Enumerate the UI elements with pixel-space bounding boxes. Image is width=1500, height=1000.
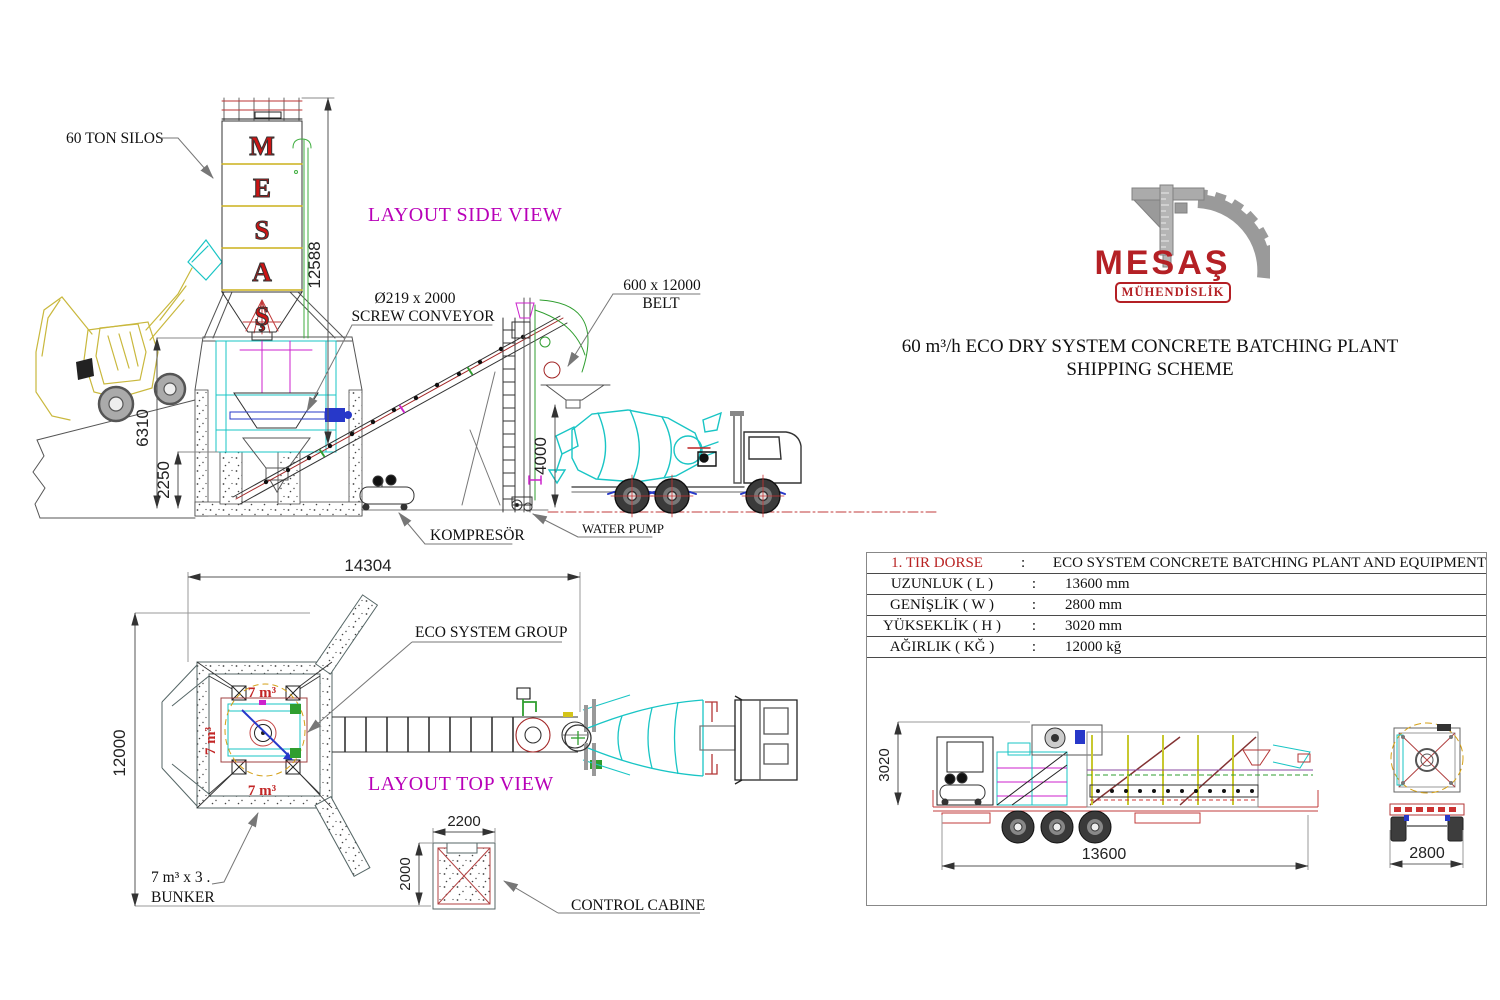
top-view-title: LAYOUT TOP VIEW xyxy=(368,773,554,795)
truck-wheels xyxy=(611,475,784,517)
control-cabin-plan xyxy=(433,843,495,909)
spec-separator: : xyxy=(1007,553,1039,573)
bunker-label-line1: 7 m³ x 3 . xyxy=(151,869,210,886)
compressor-label: KOMPRESÖR xyxy=(430,527,525,544)
logo-subtitle-badge: MÜHENDİSLİK xyxy=(1115,282,1231,303)
side-view-title: LAYOUT SIDE VIEW xyxy=(368,204,562,226)
discharge-tower xyxy=(503,298,610,512)
mixer-truck-side xyxy=(549,410,801,517)
table-row: 1. TIR DORSE : ECO SYSTEM CONCRETE BATCH… xyxy=(867,553,1486,574)
dim-plant-length: 14304 xyxy=(344,556,391,575)
spec-value: ECO SYSTEM CONCRETE BATCHING PLANT AND E… xyxy=(1039,553,1486,573)
silo-letter: S xyxy=(254,215,269,245)
cement-silo: M E S A Ş xyxy=(222,98,311,340)
frame-brackets xyxy=(705,702,717,774)
wheel-loader xyxy=(36,240,222,421)
silo-letter: M xyxy=(249,131,274,161)
control-cabin-label: CONTROL CABINE xyxy=(571,897,705,914)
dim-plant-width: 12000 xyxy=(110,729,129,776)
dim-cabin-width: 2200 xyxy=(447,813,480,830)
cab-plan xyxy=(735,696,797,784)
belt-label-line1: 600 x 12000 xyxy=(623,277,701,294)
spec-separator: : xyxy=(1017,616,1051,636)
dim-cabin-depth: 2000 xyxy=(397,857,414,890)
spec-label: AĞIRLIK ( KĞ ) xyxy=(867,637,1017,657)
company-logo: MESAŞ MÜHENDİSLİK xyxy=(1085,178,1285,313)
dim-structure-height: 6310 xyxy=(133,409,152,447)
bunker-cell-label: 7 m³ xyxy=(248,685,277,701)
dim-silo-height: 12588 xyxy=(305,241,324,288)
bunker-cell-label: 7 m³ xyxy=(203,726,219,755)
mixer-truck-plan xyxy=(565,696,797,784)
spec-separator: : xyxy=(1017,637,1051,657)
bunker-cell-label: 7 m³ xyxy=(248,783,277,799)
table-row: AĞIRLIK ( KĞ ) : 12000 kğ xyxy=(867,637,1486,658)
spec-label: 1. TIR DORSE xyxy=(867,553,1007,573)
spec-separator: : xyxy=(1017,595,1051,615)
table-row: GENİŞLİK ( W ) : 2800 mm xyxy=(867,595,1486,616)
spec-value: 2800 mm xyxy=(1051,595,1486,615)
eco-system-group-label: ECO SYSTEM GROUP xyxy=(415,624,567,641)
dim-discharge-clearance: 4000 xyxy=(531,437,550,475)
spec-value: 13600 mm xyxy=(1051,574,1486,594)
spec-value: 3020 mm xyxy=(1051,616,1486,636)
shipping-scheme-drawing: { "header": { "logo_text": "MESAŞ", "log… xyxy=(0,0,1500,1000)
water-pump-label: WATER PUMP xyxy=(582,521,664,536)
document-title-line1: 60 m³/h ECO DRY SYSTEM CONCRETE BATCHING… xyxy=(860,335,1440,358)
spec-separator: : xyxy=(1017,574,1051,594)
additive-pump xyxy=(517,688,536,716)
silo-label: 60 TON SILOS xyxy=(66,130,164,147)
document-title-line2: SHIPPING SCHEME xyxy=(860,358,1440,381)
table-row: YÜKSEKLİK ( H ) : 3020 mm xyxy=(867,616,1486,637)
receiving-hopper xyxy=(541,385,610,408)
table-row: UZUNLUK ( L ) : 13600 mm xyxy=(867,574,1486,595)
silo-letter: A xyxy=(252,257,272,287)
top-view: 7 m³ 7 m³ 7 m³ xyxy=(110,556,797,914)
belt-label-line2: BELT xyxy=(642,295,680,312)
shipping-spec-panel: 1. TIR DORSE : ECO SYSTEM CONCRETE BATCH… xyxy=(866,552,1487,906)
spec-label: UZUNLUK ( L ) xyxy=(867,574,1017,594)
screw-conveyor-label-line2: SCREW CONVEYOR xyxy=(351,308,495,325)
dim-pit-depth: 2250 xyxy=(154,461,173,499)
truck-cab xyxy=(730,411,801,483)
screw-conveyor-label-line1: Ø219 x 2000 xyxy=(375,290,456,307)
silo-railing xyxy=(222,98,302,120)
silo-letter: E xyxy=(253,173,271,203)
logo-wordmark: MESAŞ xyxy=(1085,244,1240,283)
bunker-label-line2: BUNKER xyxy=(151,889,215,906)
ramp-ground xyxy=(33,400,938,518)
spec-label: YÜKSEKLİK ( H ) xyxy=(867,616,1017,636)
side-view: M E S A Ş xyxy=(33,98,938,544)
document-title: 60 m³/h ECO DRY SYSTEM CONCRETE BATCHING… xyxy=(860,335,1440,381)
silo-letter: Ş xyxy=(254,301,269,331)
compressor xyxy=(360,475,414,510)
spec-label: GENİŞLİK ( W ) xyxy=(867,595,1017,615)
spec-value: 12000 kğ xyxy=(1051,637,1486,657)
